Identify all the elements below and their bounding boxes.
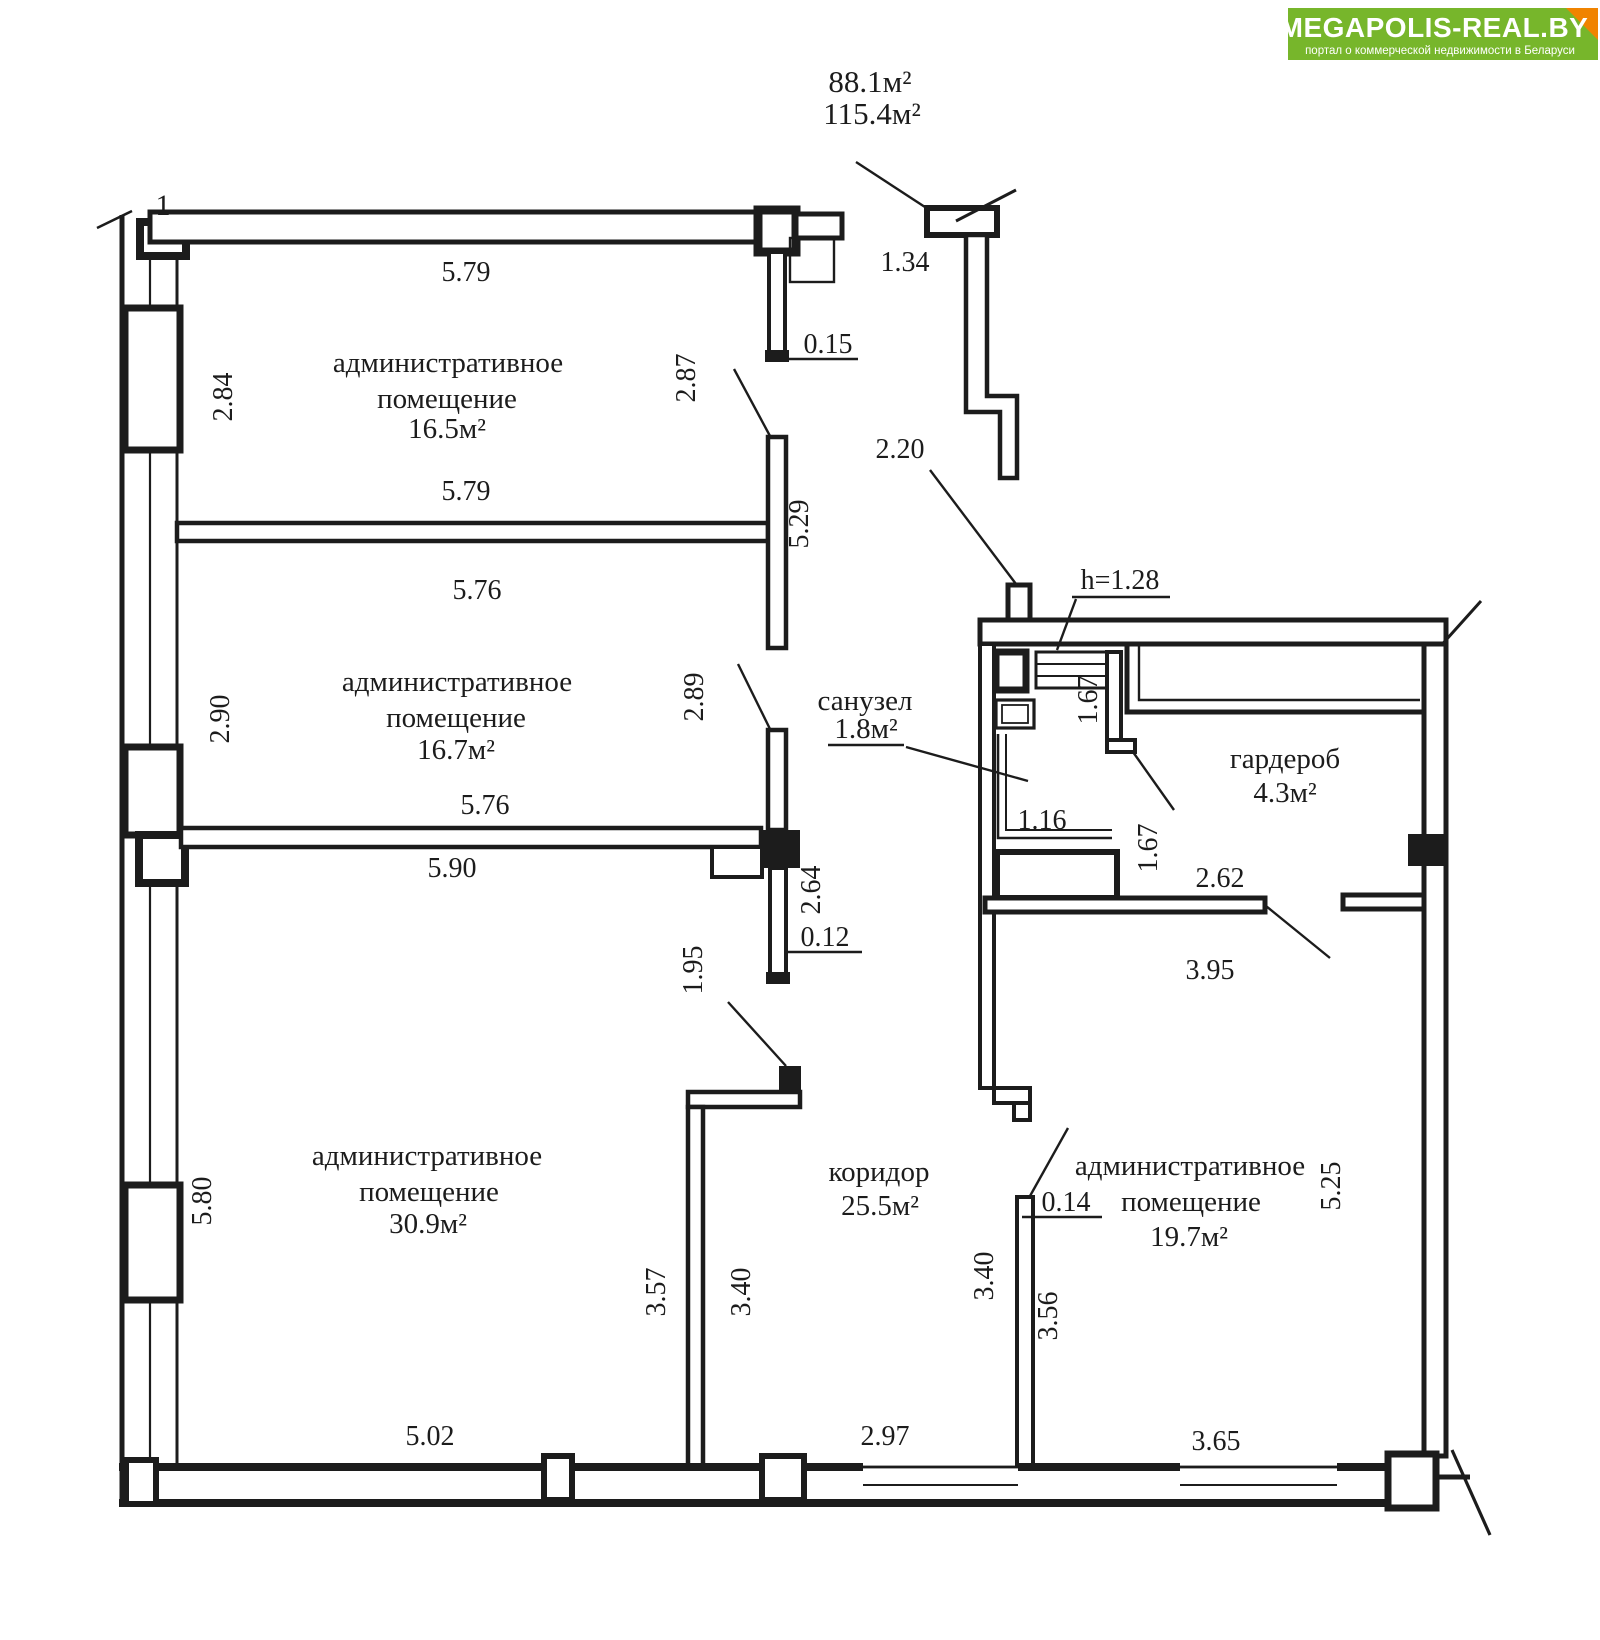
dim-5.90: 5.90 bbox=[428, 853, 477, 884]
dim-3.40-a: 3.40 bbox=[726, 1268, 757, 1317]
leader-line bbox=[1133, 752, 1174, 810]
closet-below-bath bbox=[997, 852, 1117, 898]
divider-room2-room3 bbox=[181, 828, 761, 847]
wall-foot bbox=[1014, 1103, 1030, 1120]
wall-end-cap bbox=[765, 350, 789, 362]
room-garderob-area: 4.3м² bbox=[1253, 777, 1317, 809]
wall-pier bbox=[544, 1456, 572, 1500]
wall-end-cap bbox=[766, 972, 790, 984]
leader-line-total-area bbox=[856, 162, 928, 209]
room-admin3-name-line2: помещение bbox=[359, 1176, 499, 1208]
partition-stub bbox=[769, 252, 785, 356]
dim-2.20: 2.20 bbox=[876, 434, 925, 465]
wall-pier bbox=[1388, 1454, 1436, 1508]
top-wall bbox=[150, 210, 858, 362]
room-admin3-area: 30.9м² bbox=[389, 1208, 467, 1240]
bottom-wall-thick-segment bbox=[1018, 1463, 1180, 1471]
right-exterior-wall bbox=[1424, 644, 1446, 1456]
bottom-wall bbox=[119, 1450, 1490, 1535]
door-jamb bbox=[1107, 740, 1135, 752]
sanuzel-right-wall bbox=[1107, 652, 1121, 748]
wall-pier bbox=[139, 835, 185, 883]
dim-0.14: 0.14 bbox=[1042, 1187, 1091, 1218]
left-wall bbox=[97, 211, 186, 1503]
corridor-walls bbox=[688, 1066, 1102, 1467]
wall-bump bbox=[1008, 585, 1030, 622]
room-admin1-name-line1: административное bbox=[333, 347, 563, 379]
block-top-wall bbox=[980, 620, 1446, 644]
room-corridor-area: 25.5м² bbox=[841, 1190, 919, 1222]
dim-5.79-top: 5.79 bbox=[442, 257, 491, 288]
room-admin2-area: 16.7м² bbox=[417, 734, 495, 766]
dim-1.95: 1.95 bbox=[678, 946, 709, 995]
dim-h-1.28: h=1.28 bbox=[1081, 565, 1160, 596]
vent-shaft bbox=[996, 652, 1026, 690]
dim-3.65: 3.65 bbox=[1192, 1426, 1241, 1457]
dim-3.40-b: 3.40 bbox=[969, 1252, 1000, 1301]
dim-5.76-top: 5.76 bbox=[453, 575, 502, 606]
room-garderob-name: гардероб bbox=[1230, 743, 1340, 775]
leader-line bbox=[906, 747, 1028, 781]
wall-end-cap bbox=[779, 1066, 801, 1092]
logo-title: MEGAPOLIS-REAL.BY bbox=[1280, 12, 1589, 43]
door-leaf bbox=[796, 214, 842, 238]
room-admin3-name-line1: административное bbox=[312, 1140, 542, 1172]
dim-5.80: 5.80 bbox=[187, 1177, 218, 1226]
block-bottom-wall bbox=[985, 898, 1265, 912]
leader-line bbox=[1266, 906, 1330, 958]
cut-mark bbox=[1452, 1450, 1490, 1535]
dim-3.57: 3.57 bbox=[641, 1268, 672, 1317]
wall-pier bbox=[125, 1185, 180, 1300]
dim-2.89: 2.89 bbox=[679, 673, 710, 722]
junction-pillar bbox=[760, 830, 800, 868]
leader-line bbox=[1030, 1128, 1068, 1196]
dim-2.90: 2.90 bbox=[205, 695, 236, 744]
dim-2.64: 2.64 bbox=[796, 866, 827, 915]
wall-pier bbox=[125, 747, 180, 835]
room-admin4-name-line1: административное bbox=[1075, 1150, 1305, 1182]
cut-mark bbox=[97, 211, 132, 228]
room-admin2-name-line1: административное bbox=[342, 666, 572, 698]
watermark-logo: MEGAPOLIS-REAL.BY портал о коммерческой … bbox=[1280, 8, 1598, 60]
room-admin4-area: 19.7м² bbox=[1150, 1221, 1228, 1253]
built-in-closet bbox=[1127, 644, 1424, 712]
dim-2.62: 2.62 bbox=[1196, 863, 1245, 894]
room-admin4-name-line2: помещение bbox=[1121, 1186, 1261, 1218]
dim-2.87: 2.87 bbox=[671, 354, 702, 403]
partition-below-junction bbox=[770, 868, 786, 978]
entrance-wall-piece bbox=[927, 208, 997, 235]
dim-5.25: 5.25 bbox=[1316, 1162, 1347, 1211]
dim-2.84: 2.84 bbox=[208, 373, 239, 422]
wall-step bbox=[712, 847, 762, 877]
dim-1.67-b: 1.67 bbox=[1133, 824, 1164, 873]
bottom-wall-thick-segment bbox=[119, 1463, 863, 1471]
leader-line bbox=[738, 664, 770, 729]
entrance-walls bbox=[856, 162, 1017, 584]
dim-2.97: 2.97 bbox=[861, 1421, 910, 1452]
wall-foot bbox=[994, 1088, 1030, 1103]
wall-pier bbox=[126, 1460, 156, 1504]
dim-0.15: 0.15 bbox=[804, 329, 853, 360]
room-admin1-area: 16.5м² bbox=[408, 413, 486, 445]
leader-line bbox=[728, 1002, 786, 1066]
dim-5.76-bottom: 5.76 bbox=[461, 790, 510, 821]
leader-line bbox=[930, 470, 1016, 584]
wall-pier bbox=[762, 1456, 804, 1500]
room-sanuzel-area: 1.8м² bbox=[834, 713, 898, 745]
axis-mark: 1 bbox=[156, 189, 171, 222]
total-area-line2: 115.4м² bbox=[823, 96, 921, 131]
floor-plan-sheet: 1 88.1м² 115.4м² административное помеще… bbox=[0, 0, 1600, 1640]
wall-piece bbox=[1343, 895, 1424, 909]
block-left-wall bbox=[980, 644, 994, 1088]
leader-line bbox=[734, 369, 770, 436]
corridor-right-wall bbox=[1017, 1197, 1033, 1467]
wall-pillar bbox=[1408, 834, 1444, 866]
dim-1.16: 1.16 bbox=[1018, 805, 1067, 836]
dim-5.29: 5.29 bbox=[784, 500, 815, 549]
dim-1.34: 1.34 bbox=[881, 247, 930, 278]
top-wall-double-line bbox=[150, 212, 760, 242]
sanuzel-garderob-block bbox=[828, 585, 1481, 1456]
corridor-left-wall bbox=[688, 1107, 703, 1467]
dim-0.12: 0.12 bbox=[801, 922, 850, 953]
dim-5.02: 5.02 bbox=[406, 1421, 455, 1452]
central-partition-lower bbox=[768, 730, 786, 830]
floor-plan-drawing bbox=[97, 162, 1490, 1535]
dim-3.56: 3.56 bbox=[1033, 1292, 1064, 1341]
wall-pier bbox=[125, 308, 180, 450]
logo-subtitle: портал о коммерческой недвижимости в Бел… bbox=[1305, 45, 1575, 57]
room-admin2-name-line2: помещение bbox=[386, 702, 526, 734]
total-area-line1: 88.1м² bbox=[828, 64, 911, 99]
entrance-jog-wall bbox=[966, 235, 1017, 478]
labels: 1 88.1м² 115.4м² административное помеще… bbox=[156, 64, 1348, 1457]
dim-5.79-bottom: 5.79 bbox=[442, 476, 491, 507]
dim-1.67-a: 1.67 bbox=[1073, 676, 1104, 725]
room-corridor-name: коридор bbox=[829, 1156, 930, 1188]
dim-3.95: 3.95 bbox=[1186, 955, 1235, 986]
divider-room1-room2 bbox=[177, 523, 768, 541]
room-admin1-name-line2: помещение bbox=[377, 383, 517, 415]
